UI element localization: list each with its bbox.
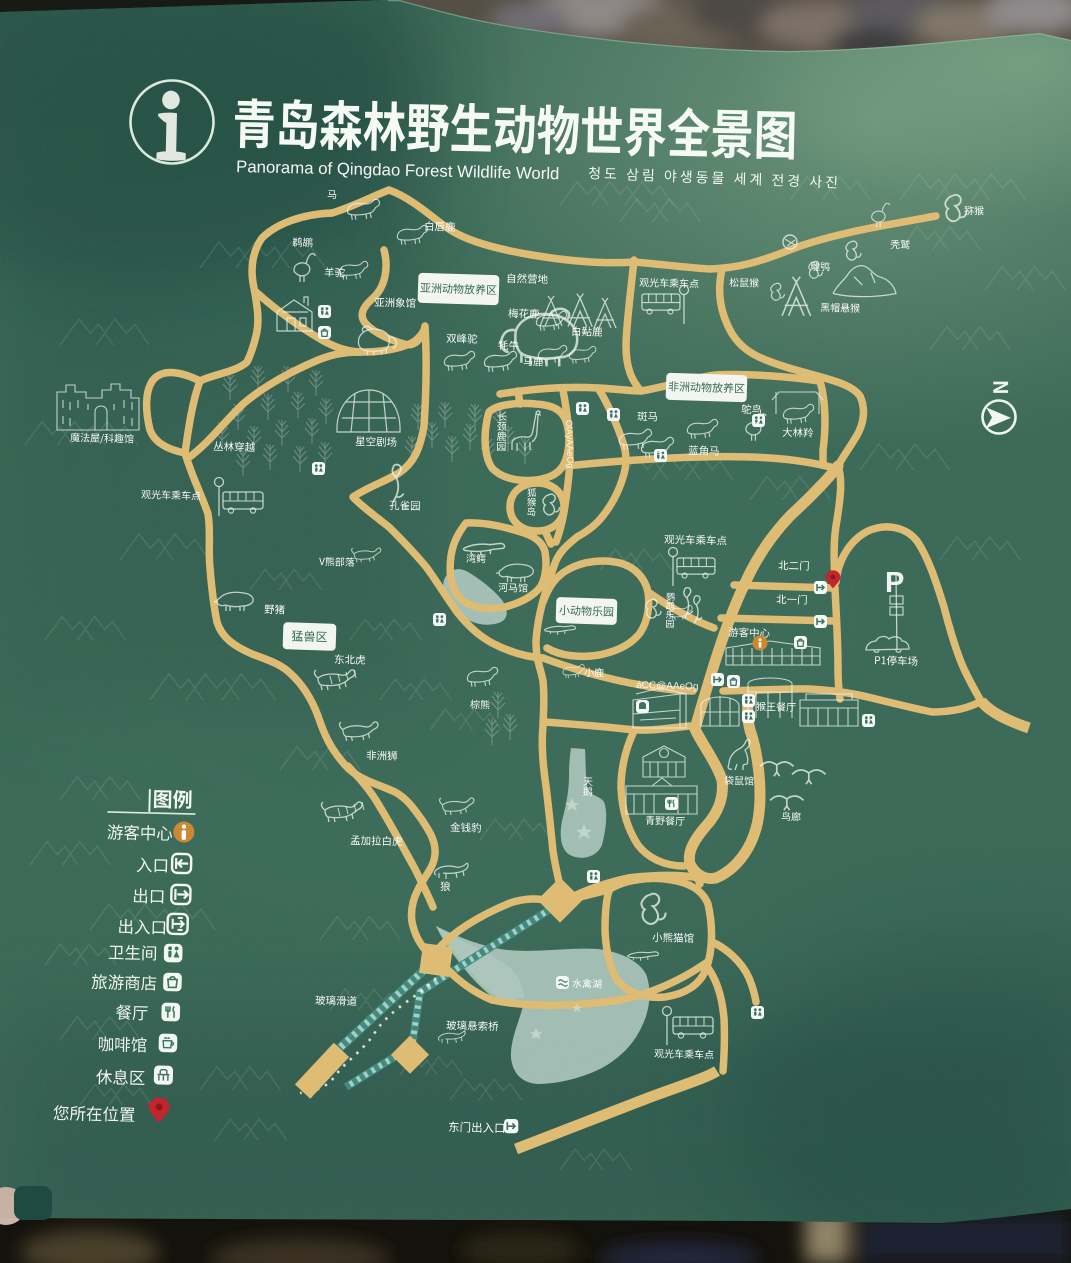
- svg-text:OlAyAAeOg: OlAyAAeOg: [564, 420, 576, 469]
- svg-text:áCC@AAeOg: áCC@AAeOg: [636, 680, 699, 693]
- svg-text:P: P: [885, 567, 904, 599]
